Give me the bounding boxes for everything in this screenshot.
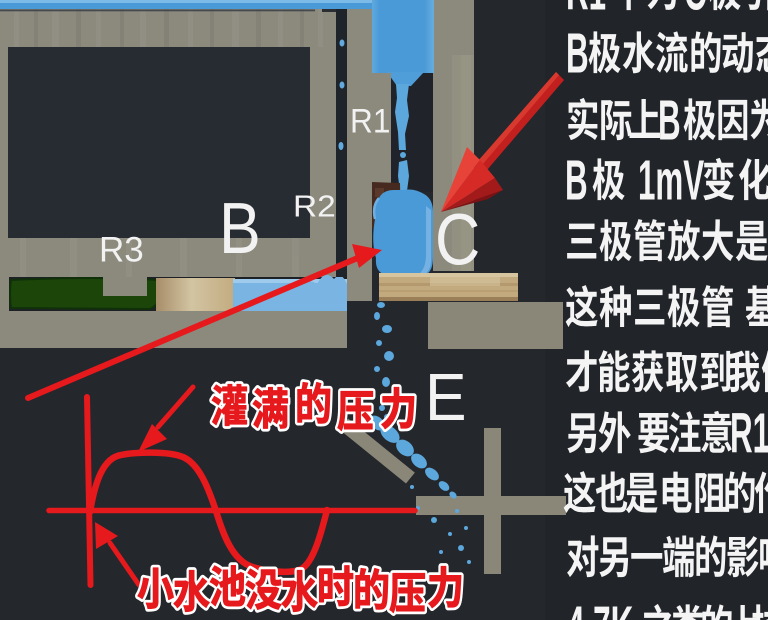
svg-text:B: B [658, 87, 681, 151]
svg-text:R1: R1 [730, 400, 768, 464]
svg-text:C: C [435, 200, 480, 280]
svg-text:B: B [565, 147, 588, 211]
svg-text:E: E [425, 359, 467, 435]
svg-text:B: B [566, 20, 589, 84]
svg-text:C: C [684, 0, 707, 22]
svg-text:4.7K: 4.7K [567, 593, 633, 620]
svg-text:1mV: 1mV [638, 147, 704, 211]
svg-text:R3: R3 [99, 231, 144, 270]
svg-text:B: B [219, 189, 261, 269]
svg-text:R1: R1 [350, 101, 390, 139]
svg-text:R1: R1 [566, 0, 606, 22]
svg-text:R2: R2 [293, 189, 336, 224]
